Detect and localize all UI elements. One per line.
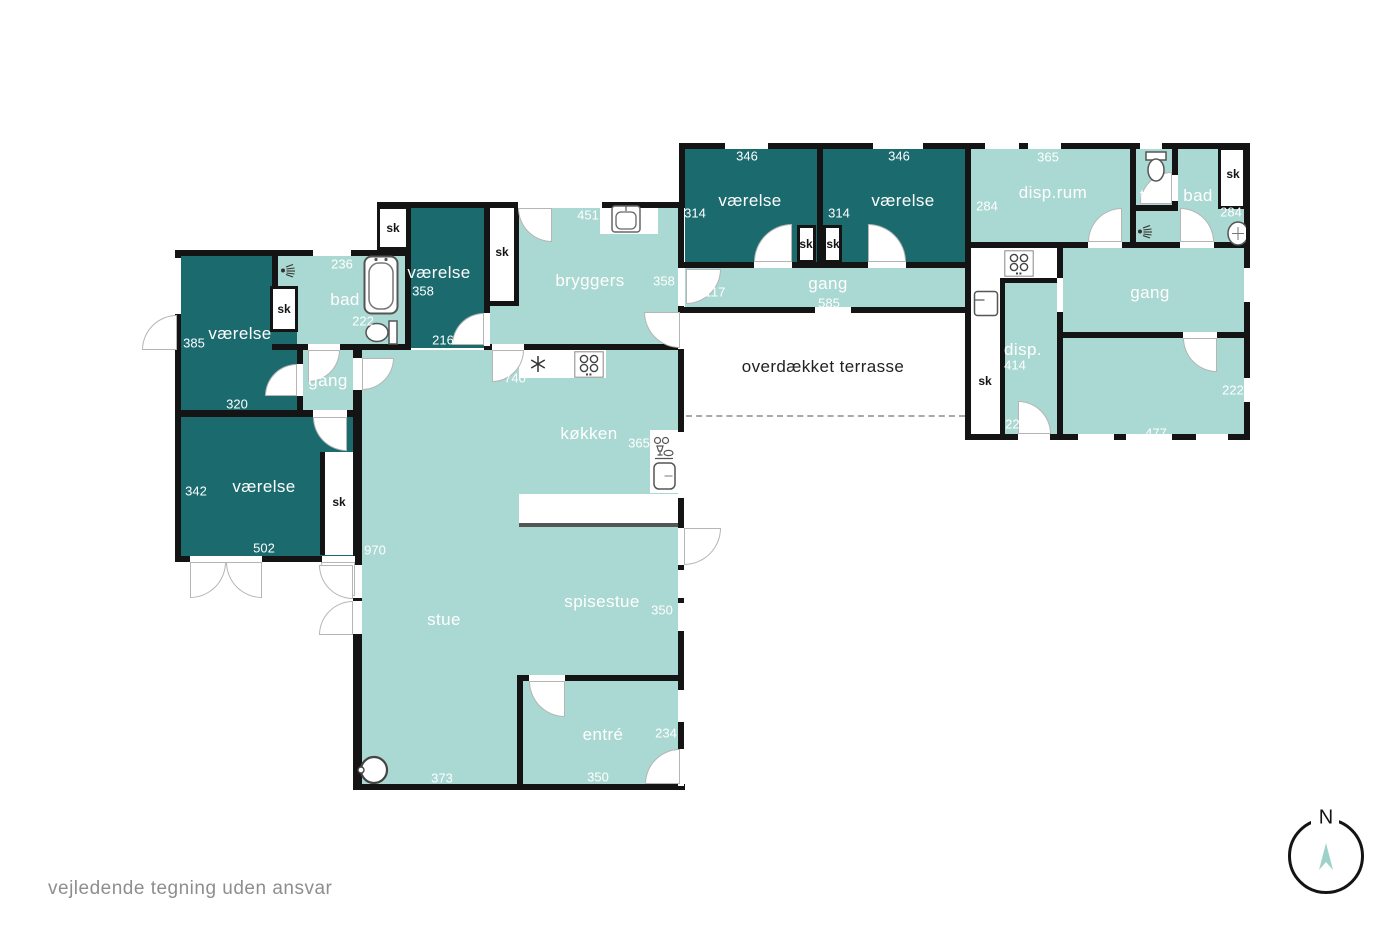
room-label-bedroom-ne2: værelse: [871, 191, 934, 211]
sink-icon: [653, 462, 676, 490]
dim-disp-rum-top: 365: [1037, 150, 1059, 165]
sink-icon: [1226, 221, 1246, 246]
closet-label: sk: [978, 374, 991, 388]
door-swing-arc: [226, 562, 262, 598]
window-gap: [678, 603, 684, 631]
room-label-bedroom-c: værelse: [407, 263, 470, 283]
room-label-bedroom-sw: værelse: [232, 477, 295, 497]
dim-bedroom-sw-side: 342: [185, 484, 207, 499]
door-swing-arc: [319, 565, 353, 599]
wall-segment: [1172, 149, 1178, 175]
dim-bedroom-sw-bottom: 502: [253, 541, 275, 556]
window-gap: [678, 690, 684, 722]
room-label-entry: entré: [583, 725, 624, 745]
closet-label: sk: [495, 245, 508, 259]
window-gap: [985, 143, 1019, 149]
closet-label: sk: [826, 237, 839, 251]
window-gap: [678, 570, 684, 598]
room-label-bath-w: bad: [330, 290, 360, 310]
dim-bedroom-ne1-side: 314: [684, 206, 706, 221]
wall-segment: [1172, 201, 1178, 211]
dim-bath-w-top: 236: [331, 257, 353, 272]
stove-icon: [1004, 250, 1034, 277]
dim-entry-side: 234: [655, 726, 677, 741]
closet-label: sk: [386, 221, 399, 235]
dim-hall-n-bottom: 585: [818, 296, 840, 311]
door-gap: [868, 262, 906, 268]
closet-label: sk: [799, 237, 812, 251]
terrace-dashed-boundary: [686, 415, 965, 417]
disclaimer-text: vejledende tegning uden ansvar: [48, 878, 332, 900]
room-bryggers-fill2: [490, 306, 519, 348]
wall-segment: [1057, 332, 1250, 338]
fridge-icon: [973, 290, 999, 317]
freezer-icon: [530, 356, 546, 372]
dim-bedroom-nw-side: 385: [183, 336, 205, 351]
dim-room-se-side: 222: [1222, 383, 1244, 398]
closet-label: sk: [1226, 167, 1239, 181]
window-gap: [678, 432, 684, 498]
door-gap: [1088, 242, 1122, 248]
room-label-bath-e: bad: [1183, 186, 1213, 206]
dim-kitchen-side: 365: [628, 436, 650, 451]
room-label-dining: spisestue: [564, 592, 639, 612]
door-gap: [754, 262, 792, 268]
dim-disp-rum-side: 284: [976, 199, 998, 214]
dim-bedroom-c-bottom: 216: [432, 333, 454, 348]
dim-bedroom-ne2-top: 346: [888, 149, 910, 164]
stove-icon: [574, 351, 604, 378]
door-swing-arc: [142, 315, 177, 350]
toilet-icon: [1144, 151, 1168, 183]
compass-arrow-icon: [1319, 843, 1333, 870]
window-gap: [313, 250, 351, 256]
dim-disp-bottom: 222: [1005, 417, 1027, 432]
dim-bedroom-ne2-side: 314: [828, 206, 850, 221]
room-label-disp-rum: disp.rum: [1019, 183, 1087, 203]
window-gap: [1244, 378, 1250, 402]
dim-entry-bottom: 350: [587, 770, 609, 785]
bathtub-icon: [363, 255, 399, 315]
door-swing-arc: [190, 562, 226, 598]
room-label-hall-e: gang: [1130, 283, 1169, 303]
sink-icon: [611, 205, 641, 233]
dim-bedroom-c-size: 358: [412, 284, 434, 299]
dim-living-bottom: 373: [431, 771, 453, 786]
dim-disp-side: 414: [1004, 358, 1026, 373]
door-gap: [1018, 434, 1050, 440]
floor-plan: værelse 346 314 værelse 346 314 disp.rum…: [0, 0, 1400, 933]
shower-icon: [279, 262, 296, 279]
wall-segment: [1000, 278, 1057, 283]
kitchen-counter-bottom: [519, 494, 678, 527]
wall-segment: [679, 143, 685, 208]
door-gap: [313, 410, 347, 417]
door-gap: [484, 313, 490, 346]
room-label-hall-w: gang: [308, 371, 347, 391]
dim-bedroom-ne1-top: 346: [736, 149, 758, 164]
dishwasher-icon: [653, 444, 675, 460]
dim-bryggers-side: 358: [653, 274, 675, 289]
door-swing-arc: [319, 601, 353, 635]
door-gap: [353, 358, 362, 390]
window-gap: [1140, 143, 1162, 149]
compass-north-label: N: [1319, 807, 1333, 830]
closet-label: sk: [332, 495, 345, 509]
room-label-bryggers: bryggers: [555, 271, 624, 291]
dim-bath-w-mid: 222: [352, 314, 374, 329]
dim-kitchen-top: 740: [504, 371, 526, 386]
window-gap: [1028, 143, 1061, 149]
wall-segment: [1057, 248, 1063, 278]
dim-bedroom-nw-bottom: 320: [226, 397, 248, 412]
shower-icon: [1136, 223, 1153, 240]
dim-bryggers-top: 451: [577, 208, 599, 223]
dim-living-side: 970: [364, 543, 386, 558]
terrace-label: overdækket terrasse: [742, 357, 905, 377]
wall-segment: [487, 301, 519, 306]
dim-room-se-bottom: 477: [1145, 426, 1167, 441]
room-label-living: stue: [427, 610, 461, 630]
door-gap: [297, 364, 303, 396]
dim-bath-e-side: 284: [1220, 205, 1242, 220]
window-gap: [353, 601, 362, 634]
window-gap: [1196, 434, 1228, 440]
faucet-icon: [653, 432, 671, 441]
room-label-kitchen: køkken: [560, 424, 617, 444]
wood-stove-icon: [355, 754, 389, 786]
room-label-bedroom-nw: værelse: [208, 324, 271, 344]
wall-segment: [514, 208, 519, 305]
room-label-hall-n: gang: [808, 274, 847, 294]
dim-hall-n-door: 117: [705, 285, 726, 300]
wall-segment: [272, 256, 278, 288]
window-gap: [175, 258, 181, 314]
door-swing-arc: [684, 528, 721, 565]
closet-label: sk: [277, 302, 290, 316]
window-gap: [1078, 434, 1114, 440]
room-label-bedroom-ne1: værelse: [718, 191, 781, 211]
door-gap: [1180, 242, 1214, 248]
room-label-toi: toi.: [1140, 186, 1164, 206]
door-gap: [678, 268, 684, 306]
dim-dining-side: 350: [651, 603, 673, 618]
window-gap: [1244, 268, 1250, 302]
wall-segment: [517, 675, 523, 790]
